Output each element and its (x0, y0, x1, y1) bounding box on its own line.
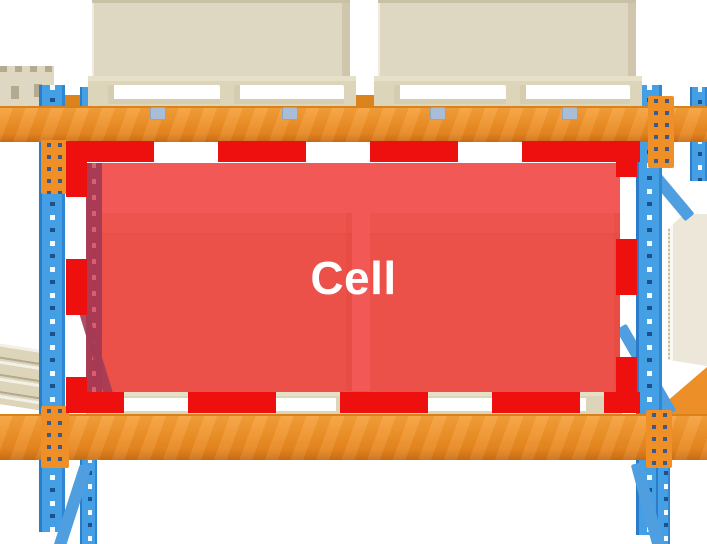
pallet-fork-pocket (394, 85, 506, 104)
upper-level-pallet-left (88, 76, 356, 110)
beam-connector-plate-bottom-left (41, 406, 69, 468)
cell-dashed-border-corner (66, 392, 116, 413)
pallet-stop-clip (562, 107, 578, 120)
pallet-rack-illustration: Cell (0, 0, 707, 544)
pallet-stop-clip (430, 107, 446, 120)
lower-beam (0, 414, 707, 460)
cell-dashed-border-corner (606, 141, 640, 162)
cell-label-text: Cell (310, 251, 396, 305)
upper-beam (0, 106, 707, 142)
cell-dashed-border-top (66, 141, 640, 162)
pallet-fork-pocket (108, 85, 220, 104)
upper-level-pallet-right (374, 76, 642, 110)
cell-dashed-border-bottom (66, 392, 640, 413)
upper-level-box-left (92, 0, 350, 76)
cell-dashed-border-corner (604, 392, 640, 413)
pallet-stop-clip (282, 107, 298, 120)
beam-connector-plate-bottom-right (646, 410, 672, 468)
cell-label: Cell (87, 163, 620, 392)
cell-dashed-border-left (66, 141, 87, 413)
upper-level-box-right (378, 0, 636, 76)
beam-connector-plate-top-left (41, 140, 69, 194)
pallet-fork-pocket (520, 85, 630, 104)
pallet-stop-clip (150, 107, 166, 120)
beam-connector-plate-top-right (648, 96, 674, 168)
pallet-fork-pocket (234, 85, 344, 104)
neighbour-box-right (668, 214, 707, 366)
